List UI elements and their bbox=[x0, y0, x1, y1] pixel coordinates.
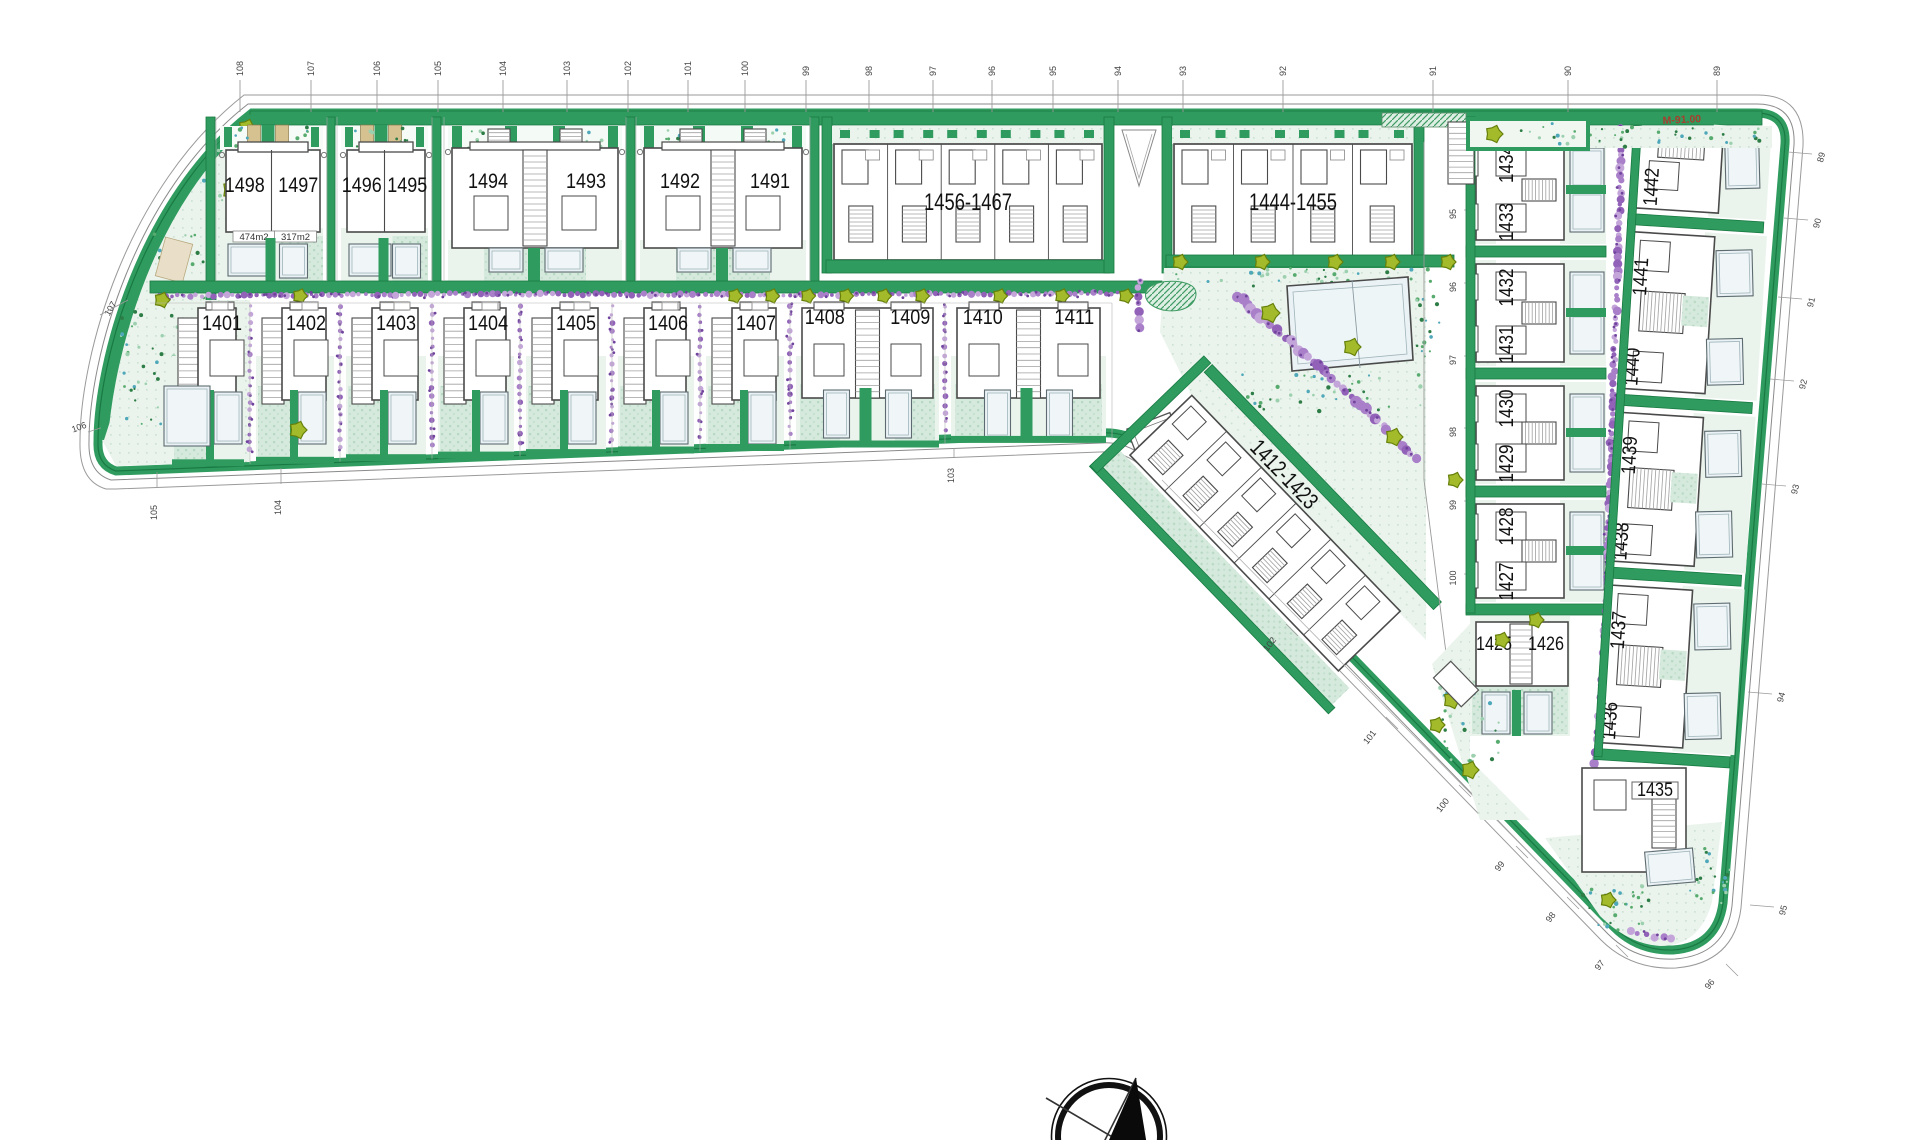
svg-text:1432: 1432 bbox=[1496, 269, 1518, 307]
svg-text:1407: 1407 bbox=[736, 312, 776, 335]
svg-text:M-91.00: M-91.00 bbox=[1662, 113, 1701, 127]
svg-text:1497: 1497 bbox=[278, 174, 318, 197]
svg-text:1427: 1427 bbox=[1496, 563, 1518, 601]
svg-text:105: 105 bbox=[149, 505, 159, 520]
svg-text:93: 93 bbox=[1178, 66, 1188, 76]
svg-text:1402: 1402 bbox=[286, 312, 326, 335]
svg-text:106: 106 bbox=[372, 61, 382, 76]
svg-text:90: 90 bbox=[1563, 66, 1573, 76]
svg-text:105: 105 bbox=[433, 61, 443, 76]
svg-text:107: 107 bbox=[306, 61, 316, 76]
svg-text:1403: 1403 bbox=[376, 312, 416, 335]
svg-text:1404: 1404 bbox=[468, 312, 508, 335]
svg-text:474m2: 474m2 bbox=[239, 232, 268, 243]
svg-text:1428: 1428 bbox=[1496, 508, 1518, 546]
svg-text:95: 95 bbox=[1048, 66, 1058, 76]
svg-text:99: 99 bbox=[801, 66, 811, 76]
svg-text:96: 96 bbox=[987, 66, 997, 76]
svg-text:98: 98 bbox=[1448, 427, 1458, 437]
svg-text:1492: 1492 bbox=[660, 170, 700, 193]
svg-text:1405: 1405 bbox=[556, 312, 596, 335]
svg-text:1409: 1409 bbox=[890, 306, 930, 329]
svg-text:103: 103 bbox=[562, 61, 572, 76]
svg-text:1444-1455: 1444-1455 bbox=[1249, 189, 1337, 216]
svg-text:1494: 1494 bbox=[468, 170, 508, 193]
svg-text:1410: 1410 bbox=[963, 306, 1003, 329]
svg-text:101: 101 bbox=[683, 61, 693, 76]
svg-text:104: 104 bbox=[273, 500, 283, 515]
svg-text:1496: 1496 bbox=[342, 174, 382, 197]
svg-text:1493: 1493 bbox=[566, 170, 606, 193]
svg-text:1406: 1406 bbox=[648, 312, 688, 335]
svg-text:1491: 1491 bbox=[750, 170, 790, 193]
svg-text:95: 95 bbox=[1448, 209, 1458, 219]
svg-text:1426: 1426 bbox=[1528, 634, 1564, 655]
svg-text:1456-1467: 1456-1467 bbox=[924, 189, 1012, 216]
svg-text:92: 92 bbox=[1278, 66, 1288, 76]
svg-text:97: 97 bbox=[1448, 355, 1458, 365]
svg-text:99: 99 bbox=[1448, 500, 1458, 510]
svg-text:97: 97 bbox=[928, 66, 938, 76]
svg-text:1431: 1431 bbox=[1496, 326, 1518, 364]
svg-text:89: 89 bbox=[1712, 66, 1722, 76]
svg-text:100: 100 bbox=[1448, 570, 1458, 585]
svg-text:1411: 1411 bbox=[1054, 306, 1094, 329]
svg-text:1498: 1498 bbox=[225, 174, 265, 197]
svg-text:1401: 1401 bbox=[202, 312, 242, 335]
svg-text:1433: 1433 bbox=[1496, 203, 1518, 241]
svg-text:104: 104 bbox=[498, 61, 508, 76]
svg-text:98: 98 bbox=[864, 66, 874, 76]
svg-text:96: 96 bbox=[1448, 282, 1458, 292]
svg-text:100: 100 bbox=[740, 61, 750, 76]
svg-text:1435: 1435 bbox=[1637, 780, 1673, 801]
svg-text:1408: 1408 bbox=[805, 306, 845, 329]
svg-text:1495: 1495 bbox=[387, 174, 427, 197]
svg-text:94: 94 bbox=[1113, 66, 1123, 76]
svg-text:103: 103 bbox=[946, 468, 956, 483]
svg-text:1429: 1429 bbox=[1496, 445, 1518, 483]
svg-text:1430: 1430 bbox=[1496, 390, 1518, 428]
svg-text:91: 91 bbox=[1428, 66, 1438, 76]
svg-text:108: 108 bbox=[235, 61, 245, 76]
svg-text:1442: 1442 bbox=[1640, 167, 1664, 206]
svg-text:102: 102 bbox=[623, 61, 633, 76]
svg-text:317m2: 317m2 bbox=[281, 232, 310, 243]
